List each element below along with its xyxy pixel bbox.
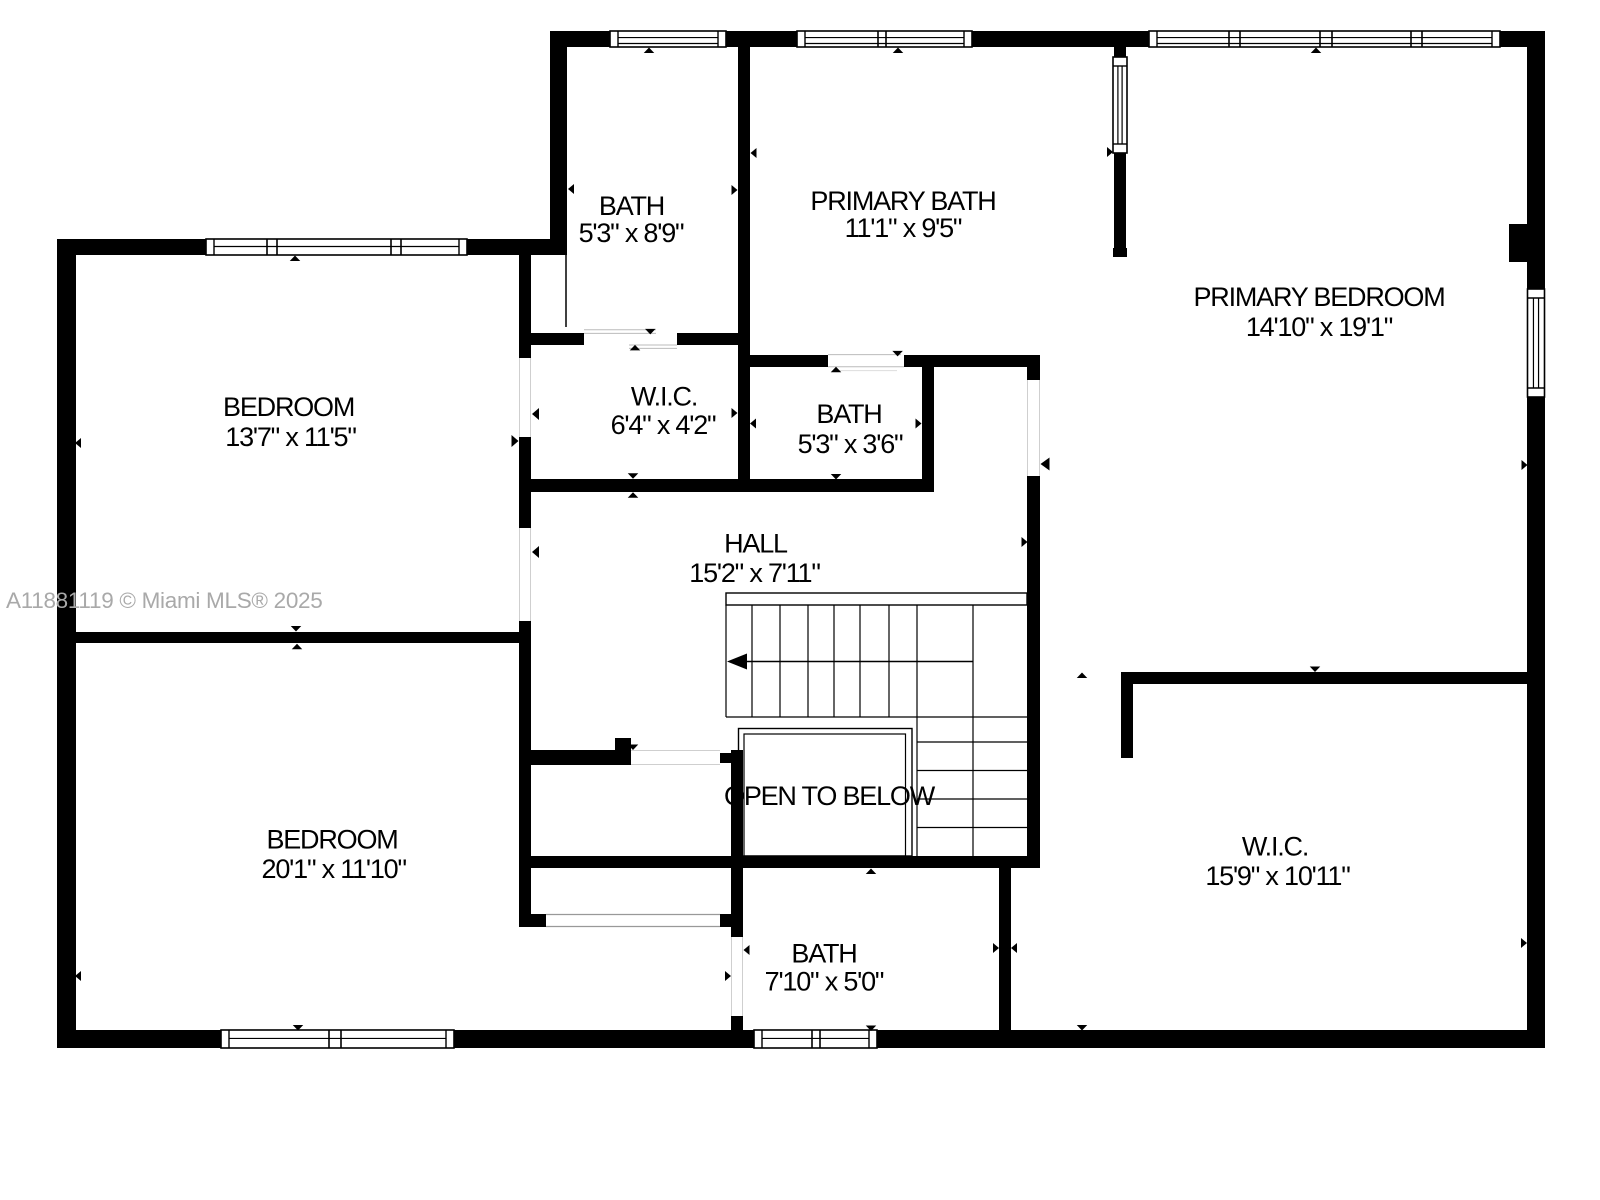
svg-text:20'1" x 11'10": 20'1" x 11'10" (262, 854, 407, 884)
svg-text:13'7" x 11'5": 13'7" x 11'5" (225, 422, 356, 452)
svg-text:BATH: BATH (816, 399, 881, 429)
svg-text:BATH: BATH (791, 939, 856, 969)
svg-text:PRIMARY BATH: PRIMARY BATH (810, 186, 995, 216)
svg-text:W.I.C.: W.I.C. (631, 382, 697, 412)
svg-text:BEDROOM: BEDROOM (266, 825, 397, 855)
svg-text:5'3" x 8'9": 5'3" x 8'9" (579, 218, 684, 248)
svg-text:BATH: BATH (599, 191, 664, 221)
svg-text:6'4" x 4'2": 6'4" x 4'2" (611, 410, 716, 440)
svg-text:14'10" x 19'1": 14'10" x 19'1" (1246, 312, 1393, 342)
svg-text:5'3" x 3'6": 5'3" x 3'6" (798, 429, 903, 459)
svg-text:15'2" x 7'11": 15'2" x 7'11" (689, 558, 820, 588)
svg-text:OPEN TO BELOW: OPEN TO BELOW (724, 781, 936, 811)
svg-text:BEDROOM: BEDROOM (223, 392, 354, 422)
svg-text:W.I.C.: W.I.C. (1242, 832, 1308, 862)
svg-text:15'9" x 10'11": 15'9" x 10'11" (1205, 861, 1350, 891)
svg-text:11'1" x 9'5": 11'1" x 9'5" (845, 213, 962, 243)
svg-text:7'10" x 5'0": 7'10" x 5'0" (765, 967, 884, 997)
svg-text:PRIMARY BEDROOM: PRIMARY BEDROOM (1193, 282, 1444, 312)
svg-text:HALL: HALL (724, 529, 788, 559)
svg-text:A11881119 © Miami MLS® 2025: A11881119 © Miami MLS® 2025 (6, 588, 322, 613)
